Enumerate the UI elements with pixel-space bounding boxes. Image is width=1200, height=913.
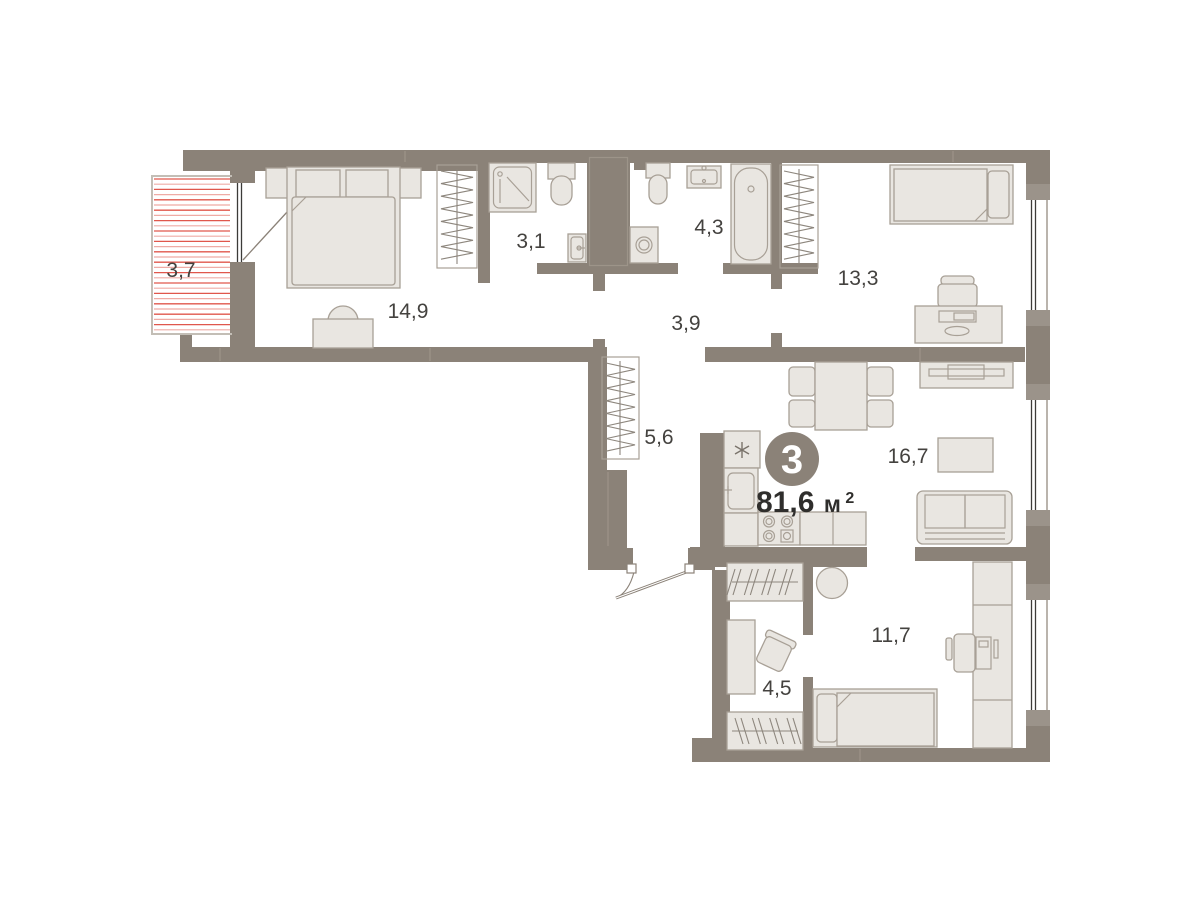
balcony-area-label: 3,7 — [166, 259, 195, 282]
desk — [727, 620, 755, 694]
dining-table — [815, 362, 867, 430]
room-bathroom — [630, 163, 771, 264]
washing-machine-icon — [630, 227, 658, 263]
single-bed — [813, 689, 937, 747]
bathroom-area-label: 4,3 — [694, 216, 723, 239]
chair — [867, 400, 893, 427]
desk — [915, 306, 1002, 343]
window-3 — [1026, 600, 1050, 710]
shower-icon — [489, 163, 536, 212]
dining-set — [789, 362, 893, 430]
coffee-table — [938, 438, 993, 472]
balcony-door-swing — [243, 211, 288, 260]
kitchen-sink-icon — [724, 468, 758, 513]
armchair — [313, 306, 373, 348]
floorplan-canvas: 3,7 14,9 3,1 4,3 13,3 3,9 5,6 16,7 11,7 … — [0, 0, 1200, 913]
wardrobe-top — [727, 563, 803, 601]
desk-chair — [946, 634, 975, 672]
room-bedroom-2 — [890, 165, 1013, 343]
room-count-value: 3 — [781, 438, 803, 482]
balcony-hatch — [154, 179, 230, 325]
sofa — [917, 491, 1012, 544]
hallway-area-label: 3,9 — [671, 312, 700, 335]
double-bed — [266, 167, 421, 288]
total-area-label: 81,6 м 2 — [756, 486, 854, 519]
hall-wardrobe — [780, 165, 818, 268]
sink-icon — [687, 166, 721, 188]
floor-plan: 3,7 14,9 3,1 4,3 13,3 3,9 5,6 16,7 11,7 … — [0, 0, 1200, 913]
door-hinge — [627, 564, 636, 573]
corridor-wardrobe — [602, 357, 639, 459]
fridge-icon — [724, 431, 760, 468]
room-bedroom-3 — [813, 562, 1012, 748]
kitchen-living-area-label: 16,7 — [888, 445, 929, 468]
room-bedroom — [266, 165, 477, 348]
window-2 — [1026, 400, 1050, 510]
chair — [867, 367, 893, 396]
window-1 — [1026, 200, 1050, 310]
shower-area-label: 3,1 — [516, 230, 545, 253]
windows — [1026, 200, 1050, 710]
bedroom-3-area-label: 11,7 — [871, 624, 910, 647]
balcony — [152, 176, 288, 334]
toilet-icon — [548, 163, 575, 205]
room-count-badge: 3 — [765, 432, 819, 486]
toilet-icon — [646, 163, 670, 204]
bathtub-icon — [731, 164, 771, 264]
bedroom-area-label: 14,9 — [388, 300, 429, 323]
bedroom-2-area-label: 13,3 — [838, 267, 879, 290]
single-bed — [890, 165, 1013, 224]
sink-icon — [568, 234, 586, 262]
door-hinge — [685, 564, 694, 573]
pouf — [817, 568, 848, 599]
desk-unit — [973, 562, 1012, 748]
wardrobe-room — [727, 563, 803, 750]
corridor-area-label: 5,6 — [644, 426, 673, 449]
desk-chair — [938, 276, 977, 307]
entrance-door — [616, 564, 694, 598]
counter-corner — [724, 513, 758, 546]
wardrobe-bottom — [727, 712, 803, 750]
chair — [754, 629, 797, 673]
tv-stand — [920, 362, 1013, 388]
chair — [789, 400, 815, 427]
wardrobe-room-area-label: 4,5 — [762, 677, 791, 700]
chair — [789, 367, 815, 396]
